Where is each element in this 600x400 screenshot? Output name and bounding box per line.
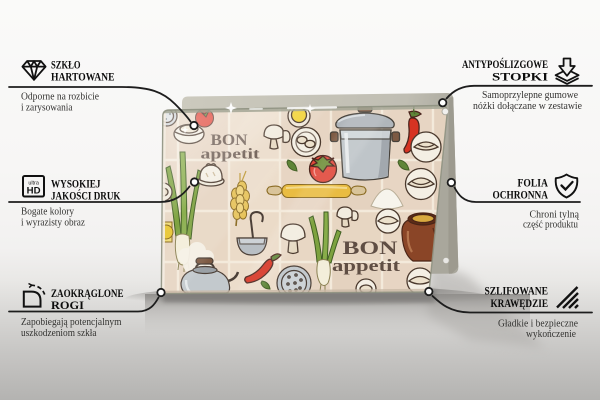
svg-text:i zarysowania: i zarysowania [21,102,73,113]
svg-text:Zapobiegają potencjalnym: Zapobiegają potencjalnym [21,317,122,328]
svg-text:Samoprzylepne gumowe: Samoprzylepne gumowe [482,90,578,101]
svg-text:STOPKI: STOPKI [492,69,549,83]
svg-text:OCHRONNA: OCHRONNA [493,188,549,202]
svg-text:nóżki dołączane w zestawie: nóżki dołączane w zestawie [473,101,582,112]
svg-text:HARTOWANE: HARTOWANE [51,70,115,84]
svg-text:Gładkie i bezpieczne: Gładkie i bezpieczne [498,318,578,329]
svg-text:część produktu: część produktu [523,219,579,230]
svg-text:uszkodzeniom szkła: uszkodzeniom szkła [21,328,97,339]
svg-text:wykończenie: wykończenie [526,329,576,340]
svg-text:JAKOŚCI DRUK: JAKOŚCI DRUK [51,188,121,202]
svg-text:ROGI: ROGI [51,298,84,312]
svg-text:appetit: appetit [332,256,400,275]
svg-text:Bogate kolory: Bogate kolory [21,206,75,217]
svg-text:KRAWĘDZIE: KRAWĘDZIE [491,296,549,310]
svg-text:i wyrazisty obraz: i wyrazisty obraz [21,217,85,228]
svg-text:Odporne na rozbicie: Odporne na rozbicie [21,91,99,102]
svg-text:HD: HD [27,186,41,197]
